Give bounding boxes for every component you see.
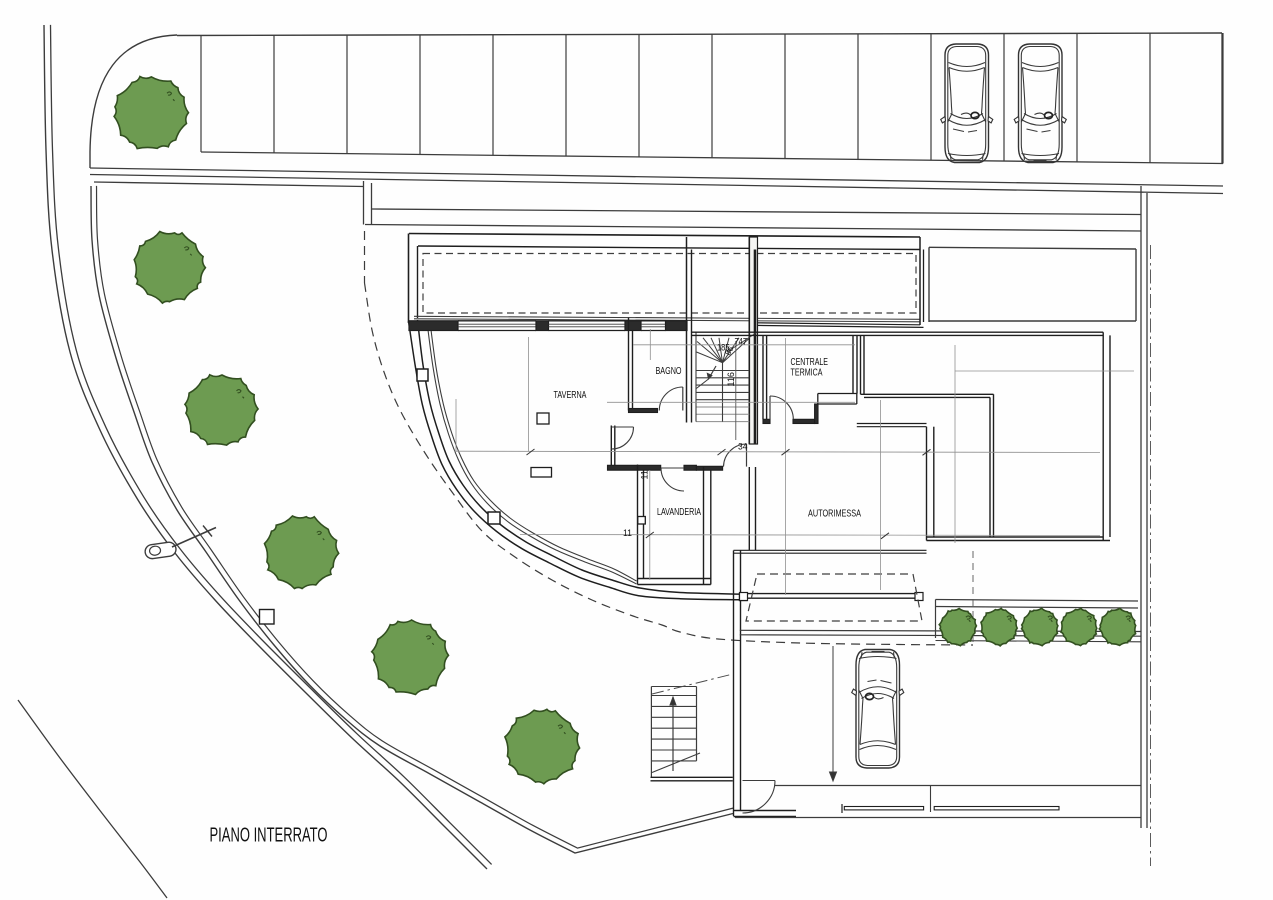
svg-text:747: 747 <box>735 337 748 347</box>
svg-text:34: 34 <box>738 442 748 452</box>
svg-text:LAVANDERIA: LAVANDERIA <box>657 506 701 518</box>
svg-text:116: 116 <box>726 372 736 386</box>
svg-text:11: 11 <box>640 470 650 479</box>
svg-text:TERMICA: TERMICA <box>791 367 823 379</box>
svg-text:PIANO INTERRATO: PIANO INTERRATO <box>210 824 328 847</box>
svg-text:11: 11 <box>623 528 632 538</box>
svg-text:AUTORIMESSA: AUTORIMESSA <box>808 508 861 520</box>
svg-text:TAVERNA: TAVERNA <box>554 389 587 401</box>
svg-text:BAGNO: BAGNO <box>656 365 682 377</box>
